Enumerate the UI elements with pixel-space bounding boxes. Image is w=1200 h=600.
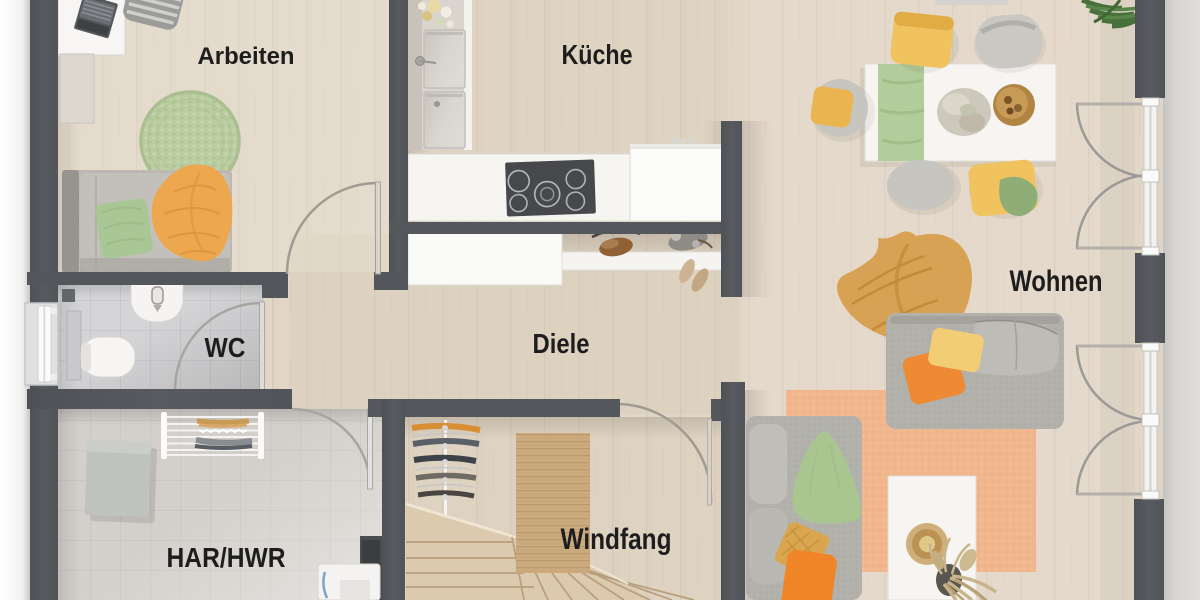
svg-text:WC: WC — [205, 332, 246, 363]
svg-text:Wohnen: Wohnen — [1010, 265, 1103, 298]
svg-text:Arbeiten: Arbeiten — [198, 43, 295, 70]
svg-text:Diele: Diele — [533, 328, 590, 359]
svg-text:HAR/HWR: HAR/HWR — [167, 542, 286, 573]
svg-text:Windfang: Windfang — [561, 523, 672, 556]
svg-text:Küche: Küche — [562, 39, 633, 70]
